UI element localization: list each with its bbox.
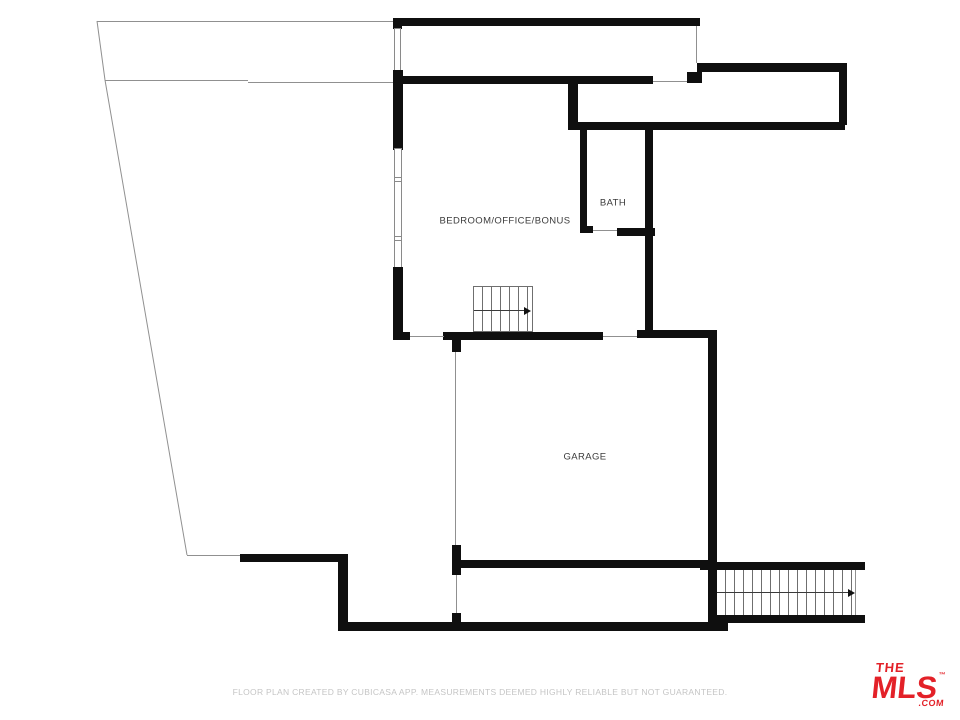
wall <box>240 554 348 562</box>
floor-plan: BEDROOM/OFFICE/BONUS BATH GARAGE FLOOR P… <box>0 0 960 720</box>
wall <box>645 122 653 338</box>
window <box>394 148 402 268</box>
stairs-run-line <box>717 592 849 593</box>
wall <box>839 63 847 125</box>
property-boundary-line <box>97 21 395 22</box>
window-mullion <box>395 240 401 241</box>
wall <box>338 554 348 630</box>
window-mullion <box>395 236 401 237</box>
window-mullion <box>395 177 401 178</box>
door-opening-line <box>456 575 457 613</box>
wall <box>637 330 717 338</box>
property-boundary-line <box>187 555 242 556</box>
room-label-bath: BATH <box>600 198 626 209</box>
door-opening-line <box>593 230 617 231</box>
wall-opening-line <box>696 26 697 63</box>
room-label-garage: GARAGE <box>563 452 606 463</box>
wall <box>568 84 578 122</box>
stairs-direction-arrow-icon <box>848 589 855 597</box>
wall <box>710 615 865 623</box>
wall <box>338 622 728 631</box>
disclaimer-text: FLOOR PLAN CREATED BY CUBICASA APP. MEAS… <box>0 687 960 697</box>
wall <box>568 122 845 130</box>
wall <box>393 18 700 26</box>
wall <box>687 72 702 83</box>
garage-door-line <box>455 352 456 545</box>
property-boundary-line <box>248 82 397 83</box>
wall <box>393 332 410 340</box>
door-opening-line <box>603 336 637 337</box>
logo-trademark: ™ <box>938 672 946 679</box>
door-opening-line <box>410 336 444 337</box>
wall <box>580 130 587 227</box>
wall <box>460 560 710 568</box>
wall <box>443 332 603 340</box>
wall-opening-line <box>653 81 687 82</box>
window <box>394 28 401 71</box>
window-mullion <box>395 181 401 182</box>
wall <box>708 330 717 630</box>
themls-logo: THE MLS™ .COM <box>870 661 949 708</box>
wall <box>393 70 403 150</box>
room-label-bedroom: BEDROOM/OFFICE/BONUS <box>440 216 571 227</box>
wall <box>697 63 847 72</box>
wall <box>452 338 461 352</box>
stairs-run-line <box>474 310 524 311</box>
wall <box>393 267 403 340</box>
wall <box>700 562 865 570</box>
wall <box>395 76 653 84</box>
wall <box>580 226 593 233</box>
property-boundary-line <box>105 80 248 81</box>
stairs-direction-arrow-icon <box>524 307 531 315</box>
